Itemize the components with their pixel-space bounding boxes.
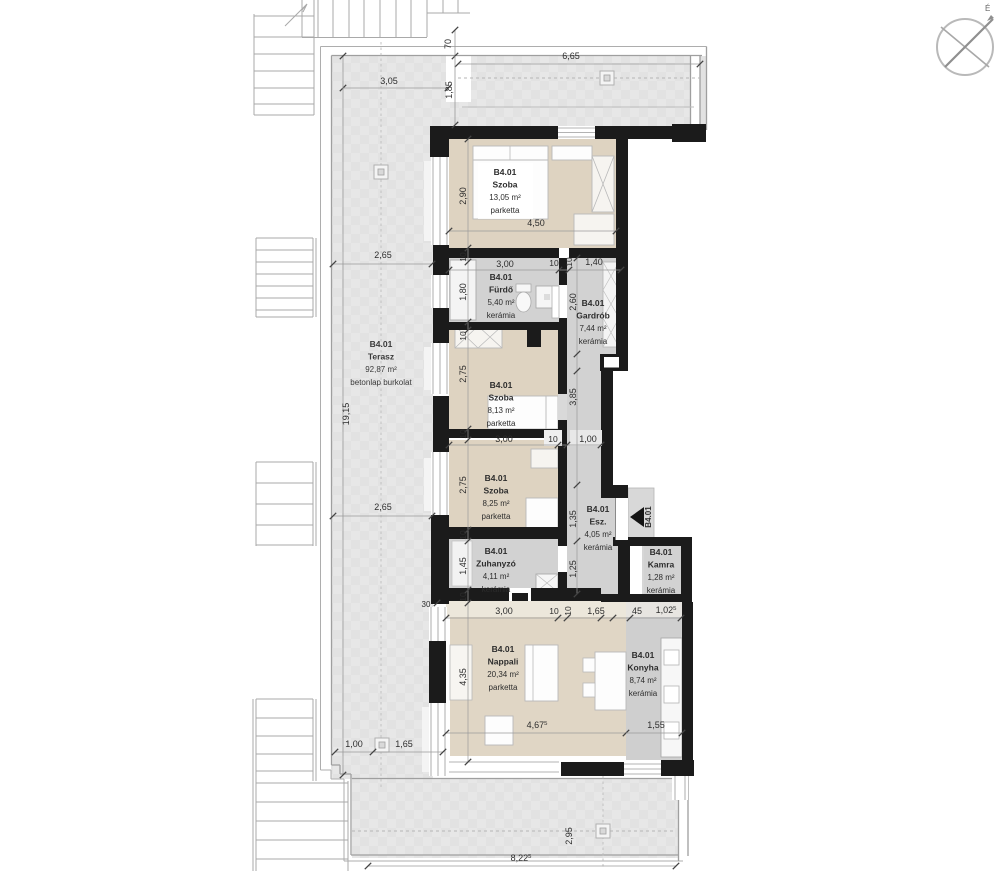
svg-text:B4.01: B4.01 — [485, 473, 508, 483]
svg-text:parketta: parketta — [482, 512, 511, 521]
svg-text:4,35: 4,35 — [458, 668, 468, 686]
svg-text:7,44 m²: 7,44 m² — [579, 324, 606, 333]
svg-text:1,25: 1,25 — [568, 560, 578, 578]
svg-text:B4.01: B4.01 — [370, 339, 393, 349]
svg-text:70: 70 — [443, 39, 453, 49]
svg-text:É: É — [985, 4, 990, 13]
svg-text:8,13 m²: 8,13 m² — [487, 406, 514, 415]
svg-text:10: 10 — [548, 434, 558, 444]
svg-text:parketta: parketta — [489, 683, 518, 692]
svg-text:10: 10 — [564, 257, 574, 267]
svg-text:45: 45 — [632, 606, 642, 616]
svg-text:1,85: 1,85 — [444, 81, 454, 99]
svg-text:1,40: 1,40 — [585, 257, 603, 267]
svg-text:1,35: 1,35 — [568, 510, 578, 528]
svg-text:5,40 m²: 5,40 m² — [487, 298, 514, 307]
svg-text:2,75: 2,75 — [458, 365, 468, 383]
svg-text:Szoba: Szoba — [492, 180, 517, 190]
svg-text:1,55: 1,55 — [647, 720, 665, 730]
svg-text:1,00: 1,00 — [345, 739, 363, 749]
svg-text:B4.01: B4.01 — [582, 298, 605, 308]
svg-text:20,34 m²: 20,34 m² — [487, 670, 519, 679]
svg-text:1,28 m²: 1,28 m² — [647, 573, 674, 582]
svg-text:19,15: 19,15 — [341, 403, 351, 426]
svg-text:92,87 m²: 92,87 m² — [365, 365, 397, 374]
svg-text:Terasz: Terasz — [368, 352, 394, 362]
svg-text:kerámia: kerámia — [579, 337, 608, 346]
svg-text:B4.01: B4.01 — [644, 506, 653, 528]
svg-text:Szoba: Szoba — [488, 393, 513, 403]
svg-text:10: 10 — [458, 252, 468, 262]
svg-text:2,75: 2,75 — [458, 476, 468, 494]
svg-text:10: 10 — [549, 258, 559, 268]
svg-text:B4.01: B4.01 — [490, 272, 513, 282]
svg-text:2,60: 2,60 — [568, 293, 578, 311]
svg-text:1,65: 1,65 — [587, 606, 605, 616]
svg-text:4,11 m²: 4,11 m² — [483, 572, 510, 581]
svg-text:parketta: parketta — [487, 419, 516, 428]
svg-text:3,00: 3,00 — [495, 434, 513, 444]
svg-text:kerámia: kerámia — [629, 689, 658, 698]
svg-text:2,90: 2,90 — [458, 187, 468, 205]
svg-text:Esz.: Esz. — [589, 517, 606, 527]
svg-text:1,45: 1,45 — [458, 557, 468, 575]
svg-text:4,05 m²: 4,05 m² — [584, 530, 611, 539]
svg-text:Gardrób: Gardrób — [576, 311, 610, 321]
svg-text:10: 10 — [549, 606, 559, 616]
svg-text:10: 10 — [458, 592, 468, 602]
svg-text:2,95: 2,95 — [564, 827, 574, 845]
svg-text:kerámia: kerámia — [482, 585, 511, 594]
svg-text:10: 10 — [458, 331, 468, 341]
svg-text:3,85: 3,85 — [568, 388, 578, 406]
svg-text:Szoba: Szoba — [483, 486, 508, 496]
svg-text:kerámia: kerámia — [487, 311, 516, 320]
svg-text:Fürdő: Fürdő — [489, 285, 513, 295]
svg-text:30: 30 — [422, 600, 431, 609]
svg-text:B4.01: B4.01 — [494, 167, 517, 177]
svg-text:B4.01: B4.01 — [587, 504, 610, 514]
svg-text:B4.01: B4.01 — [492, 644, 515, 654]
svg-text:Kamra: Kamra — [648, 560, 675, 570]
svg-text:kerámia: kerámia — [647, 586, 676, 595]
svg-text:6,65: 6,65 — [562, 51, 580, 61]
svg-text:8,25 m²: 8,25 m² — [482, 499, 509, 508]
svg-text:Nappali: Nappali — [488, 657, 519, 667]
svg-text:1,65: 1,65 — [395, 739, 413, 749]
svg-text:kerámia: kerámia — [584, 543, 613, 552]
svg-text:Konyha: Konyha — [627, 663, 658, 673]
svg-text:4,50: 4,50 — [527, 218, 545, 228]
svg-text:8,74 m²: 8,74 m² — [629, 676, 656, 685]
svg-text:B4.01: B4.01 — [490, 380, 513, 390]
svg-text:2,65: 2,65 — [374, 502, 392, 512]
svg-text:B4.01: B4.01 — [632, 650, 655, 660]
svg-text:B4.01: B4.01 — [650, 547, 673, 557]
svg-text:10: 10 — [563, 606, 573, 616]
svg-text:1,00: 1,00 — [579, 434, 597, 444]
svg-text:3,05: 3,05 — [380, 76, 398, 86]
svg-text:3,00: 3,00 — [496, 259, 514, 269]
svg-text:2,65: 2,65 — [374, 250, 392, 260]
svg-text:Zuhanyzó: Zuhanyzó — [476, 559, 516, 569]
svg-text:13,05 m²: 13,05 m² — [489, 193, 521, 202]
svg-text:3,00: 3,00 — [495, 606, 513, 616]
svg-text:B4.01: B4.01 — [485, 546, 508, 556]
svg-text:betonlap burkolat: betonlap burkolat — [350, 378, 412, 387]
svg-text:parketta: parketta — [491, 206, 520, 215]
svg-text:1,80: 1,80 — [458, 283, 468, 301]
svg-text:10: 10 — [458, 530, 468, 540]
svg-text:10: 10 — [458, 429, 468, 439]
